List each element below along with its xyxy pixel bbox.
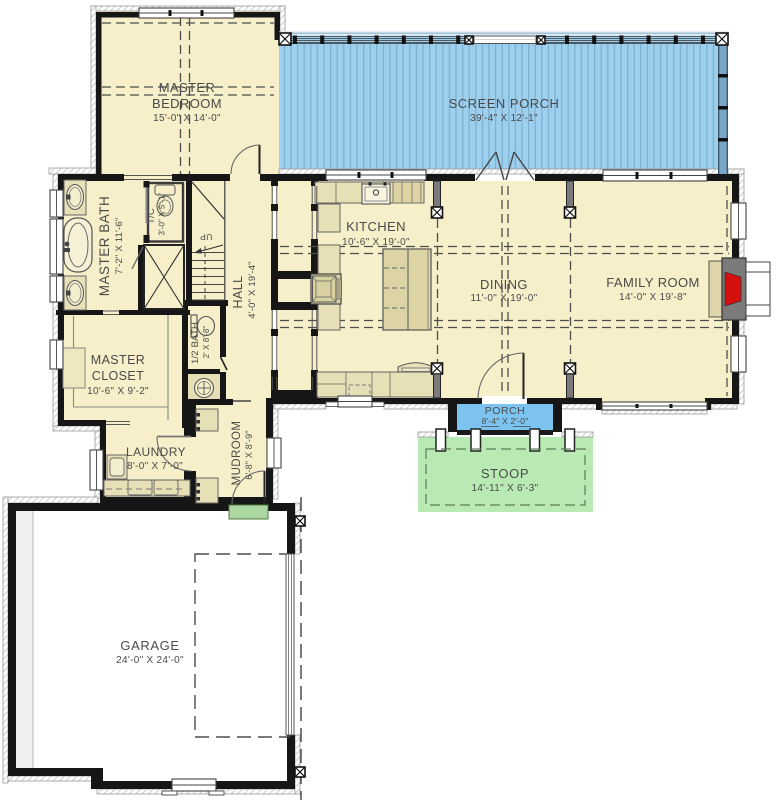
svg-text:6'-8" X 8'-9": 6'-8" X 8'-9" — [244, 430, 254, 479]
svg-text:MASTER BATH: MASTER BATH — [97, 196, 112, 297]
svg-text:11'-0" X 19'-0": 11'-0" X 19'-0" — [471, 293, 538, 304]
svg-text:T/C: T/C — [146, 208, 157, 224]
svg-text:CLOSET: CLOSET — [92, 369, 144, 383]
svg-text:14'-0" X 19'-8": 14'-0" X 19'-8" — [619, 292, 687, 303]
svg-text:3'-0" X 5'-1": 3'-0" X 5'-1" — [158, 192, 167, 235]
svg-text:LAUNDRY: LAUNDRY — [126, 445, 186, 459]
svg-text:2' X 8'-8": 2' X 8'-8" — [202, 326, 211, 359]
svg-text:8'-0" X 7'-0": 8'-0" X 7'-0" — [127, 461, 183, 472]
svg-text:UP: UP — [200, 232, 213, 242]
svg-text:GARAGE: GARAGE — [120, 638, 179, 653]
svg-text:10'-6" X 9'-2": 10'-6" X 9'-2" — [87, 386, 149, 397]
svg-text:BEDROOM: BEDROOM — [152, 96, 222, 111]
svg-text:FAMILY ROOM: FAMILY ROOM — [606, 275, 700, 290]
svg-text:MASTER: MASTER — [91, 353, 146, 367]
svg-text:KITCHEN: KITCHEN — [346, 219, 406, 234]
svg-text:STOOP: STOOP — [481, 466, 529, 481]
svg-text:39'-4" X 12'-1": 39'-4" X 12'-1" — [470, 113, 538, 124]
svg-text:24'-0" X 24'-0": 24'-0" X 24'-0" — [116, 655, 184, 666]
svg-text:14'-11" X 6'-3": 14'-11" X 6'-3" — [472, 483, 539, 494]
svg-text:15'-0" X 14'-0": 15'-0" X 14'-0" — [153, 113, 221, 124]
svg-text:8'-4" X 2'-0": 8'-4" X 2'-0" — [482, 416, 529, 426]
svg-text:MASTER: MASTER — [159, 80, 216, 95]
svg-text:10'-6" X 19'-0": 10'-6" X 19'-0" — [342, 237, 410, 248]
svg-text:1/2 BATH: 1/2 BATH — [190, 322, 201, 364]
svg-text:4'-0" X 19'-4": 4'-0" X 19'-4" — [247, 261, 258, 319]
svg-text:MUDROOM: MUDROOM — [231, 421, 243, 486]
svg-text:7'-2" X 11'-6": 7'-2" X 11'-6" — [114, 218, 125, 275]
svg-text:DINING: DINING — [480, 277, 528, 292]
svg-text:SCREEN PORCH: SCREEN PORCH — [449, 96, 560, 111]
svg-text:HALL: HALL — [231, 276, 245, 309]
